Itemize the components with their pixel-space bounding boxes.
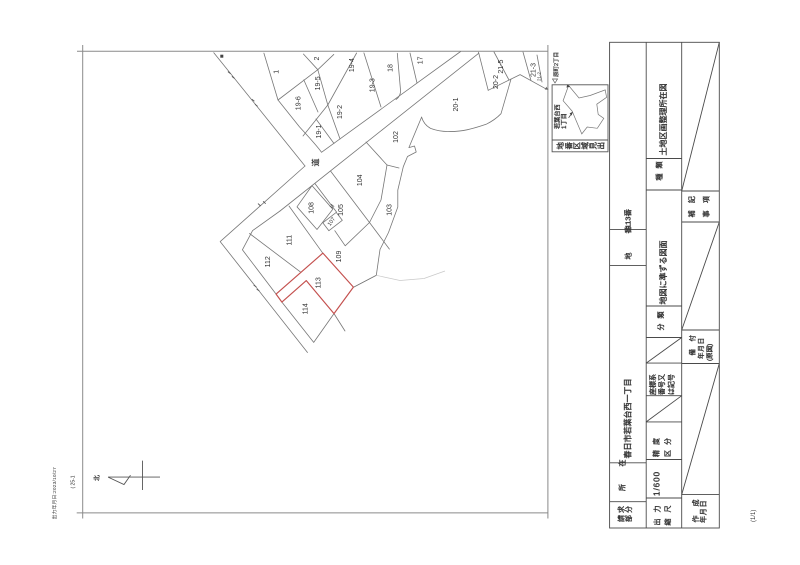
svg-text:1: 1 — [274, 70, 281, 74]
svg-text:111: 111 — [286, 235, 293, 246]
svg-text:113: 113 — [316, 277, 323, 288]
svg-text:19-2: 19-2 — [337, 105, 344, 119]
svg-text:は記号: は記号 — [666, 374, 675, 395]
svg-text:19-5: 19-5 — [315, 76, 322, 90]
svg-text:1丁目: 1丁目 — [561, 113, 568, 129]
svg-text:20-2: 20-2 — [493, 75, 500, 89]
svg-text:104: 104 — [357, 174, 364, 186]
svg-text:2: 2 — [314, 56, 321, 60]
svg-text:17: 17 — [418, 56, 425, 64]
svg-text:備付: 備付 — [687, 328, 696, 356]
svg-text:座標系: 座標系 — [648, 374, 657, 395]
svg-text:出力: 出力 — [653, 500, 662, 526]
svg-text:19-3: 19-3 — [370, 78, 377, 92]
svg-text:年月日: 年月日 — [696, 337, 705, 359]
svg-text:作成: 作成 — [691, 491, 700, 523]
svg-text:地図に準ずる図面: 地図に準ずる図面 — [658, 241, 668, 305]
svg-text:補記: 補記 — [687, 189, 696, 218]
svg-text:分類: 分類 — [656, 307, 665, 331]
svg-text:所 在: 所 在 — [618, 452, 627, 491]
svg-text:(1/1): (1/1) — [751, 510, 757, 522]
svg-text:春日市若葉台西一丁目: 春日市若葉台西一丁目 — [623, 379, 633, 459]
svg-text:請求: 請求 — [617, 504, 626, 522]
svg-text:縮尺: 縮尺 — [663, 500, 672, 526]
svg-text:種類: 種類 — [655, 157, 664, 181]
svg-text:20-1: 20-1 — [453, 97, 460, 111]
svg-text:番号又: 番号又 — [658, 374, 666, 395]
svg-text:19-6: 19-6 — [295, 96, 302, 110]
svg-text:21-5: 21-5 — [498, 59, 505, 73]
svg-text:21-2: 21-2 — [536, 72, 541, 82]
svg-text:( 25-1: ( 25-1 — [71, 475, 77, 488]
svg-text:部分: 部分 — [624, 504, 633, 522]
svg-text:102: 102 — [393, 131, 400, 143]
svg-text:年月日: 年月日 — [698, 500, 707, 523]
svg-text:(原図): (原図) — [705, 344, 713, 361]
svg-text:原町2丁目: 原町2丁目 — [553, 52, 560, 77]
svg-text:114: 114 — [303, 303, 310, 314]
svg-text:土地区画整理所在図: 土地区画整理所在図 — [658, 84, 668, 156]
svg-text:道: 道 — [311, 159, 321, 167]
svg-text:北: 北 — [93, 475, 101, 481]
svg-text:出力年月日:2023/10/27: 出力年月日:2023/10/27 — [51, 467, 58, 520]
svg-text:105: 105 — [338, 204, 345, 216]
svg-text:区分: 区分 — [663, 433, 672, 457]
svg-text:109: 109 — [336, 251, 343, 263]
svg-text:19-1: 19-1 — [316, 124, 323, 138]
svg-text:1/600: 1/600 — [653, 471, 662, 496]
svg-text:19-4: 19-4 — [349, 58, 356, 72]
svg-text:112: 112 — [265, 256, 272, 267]
svg-text:108: 108 — [309, 202, 316, 214]
svg-text:出: 出 — [596, 142, 606, 150]
svg-text:精度: 精度 — [652, 433, 661, 457]
svg-text:18: 18 — [388, 64, 395, 72]
svg-text:103: 103 — [387, 204, 394, 216]
svg-text:事項: 事項 — [702, 189, 711, 218]
svg-text:地 番: 地 番 — [624, 218, 633, 259]
